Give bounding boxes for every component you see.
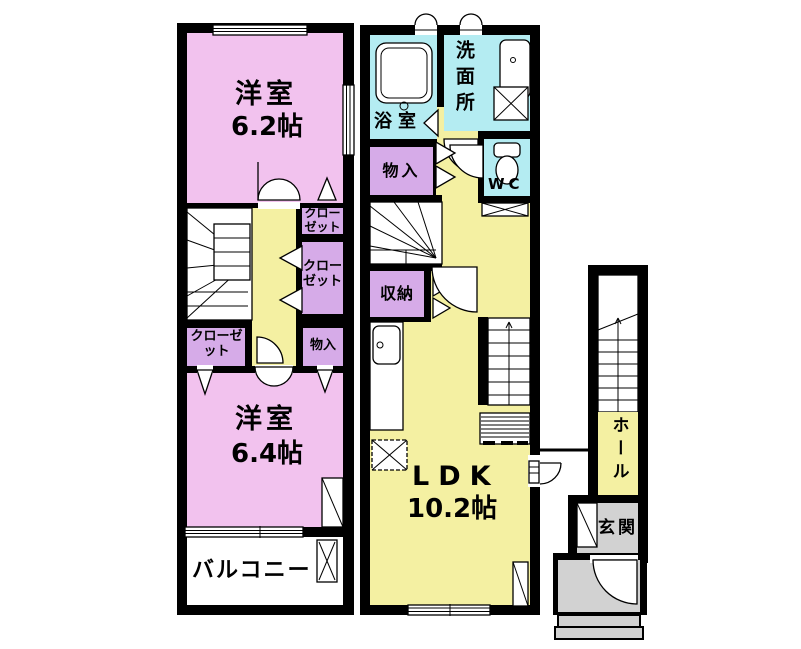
room-a-size-label: 6.2帖 — [231, 113, 303, 143]
storage-1f-lower-label: 収納 — [370, 285, 424, 303]
balcony-label: バルコニー — [192, 558, 312, 583]
floorplan-canvas: 洋室 6.2帖 クローゼット クローゼット クローゼット 物入 洋室 6.4帖 … — [0, 0, 801, 649]
wc-label: WC — [488, 176, 524, 193]
floorplan-graphic — [0, 0, 801, 649]
ldk-name-label: LDK — [412, 461, 500, 492]
foyer-label: 玄関 — [598, 519, 638, 539]
storage-2f-label: 物入 — [303, 339, 343, 354]
washroom-label: 洗面所 — [452, 40, 474, 118]
ldk-size-label: 10.2帖 — [407, 495, 497, 525]
closet-top-label: クローゼット — [302, 207, 343, 235]
closet-left-label: クローゼット — [188, 330, 245, 360]
storage-1f-upper-label: 物入 — [370, 162, 433, 180]
bathroom-label: 浴室 — [374, 112, 422, 133]
room-a-name-label: 洋室 — [235, 79, 297, 110]
room-b-size-label: 6.4帖 — [231, 440, 303, 470]
room-b-name-label: 洋室 — [235, 404, 297, 435]
closet-mid-label: クローゼット — [302, 260, 343, 290]
hall-label: ホール — [608, 416, 628, 485]
